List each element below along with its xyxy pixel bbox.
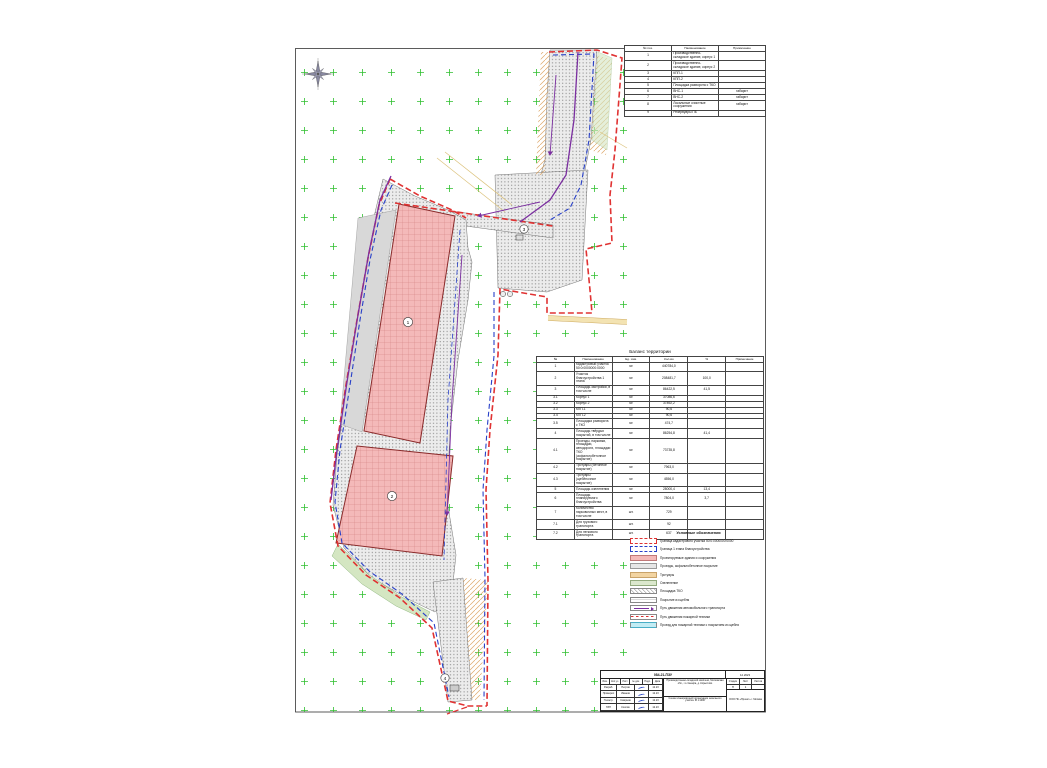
document-code: 084-21-ПЗУ (601, 671, 725, 678)
table-cell: Для легкового транспорта (574, 529, 612, 539)
sign-cell: Разраб. (601, 685, 617, 692)
table-cell (726, 493, 764, 507)
table-cell: Локальные очистные сооружения (672, 100, 719, 110)
table-cell: м² (612, 473, 650, 487)
signature-icon (635, 691, 649, 698)
explication-table: № поз.НаименованиеПримечание1Производств… (624, 45, 766, 117)
drawing-sheet-page: { "colors": { "c-red": "#e03232", "c-blu… (0, 0, 1047, 768)
table-cell: м² (612, 362, 650, 372)
table-cell (726, 438, 764, 463)
table-cell (726, 362, 764, 372)
hatch-swatch-icon (630, 588, 657, 594)
table-cell: 4.1 (537, 438, 575, 463)
table-row: 1Производственно-складское здание, корпу… (625, 51, 766, 61)
organization-name: ООО ПК «Проект» г. Москва (727, 690, 764, 711)
table-cell: 4.2 (537, 463, 575, 473)
table-cell: Кадастровый участок 50:0:0000000:0000 (574, 362, 612, 372)
sheets-cell: Листов (752, 679, 764, 689)
sign-cell: Проверил (601, 691, 617, 698)
legend-item: Проезд для пожарной техники с покрытием … (630, 622, 767, 628)
table-row: 9Резервуары ПБ (625, 110, 766, 116)
table-cell: м² (612, 463, 650, 473)
table-cell: 8 (625, 100, 672, 110)
sign-cell: 12.23 (649, 698, 663, 705)
sheet-cell: Лист 1 (740, 679, 753, 689)
pink-swatch-icon (630, 555, 657, 561)
table-cell: 41,4 (688, 429, 726, 439)
table-cell: 4 (537, 429, 575, 439)
table-cell: Производственно-складское здание, корпус… (672, 51, 719, 61)
signature-icon (635, 698, 649, 705)
signature-icon (635, 704, 649, 711)
sheet-title: Схема планировочной организации земельно… (664, 697, 726, 711)
table-row: 4Площадь твёрдых покрытий, в том числем²… (537, 429, 764, 439)
table-cell: Производственно-складское здание, корпус… (672, 61, 719, 71)
table-cell (726, 520, 764, 530)
legend-item: Путь движения пожарной техники (630, 614, 767, 620)
table-row: 3.5Площадка разворота с ТКОм²474,7 (537, 419, 764, 429)
table-cell: 7.2 (537, 529, 575, 539)
table-cell: Для грузового транспорта (574, 520, 612, 530)
table-cell (726, 473, 764, 487)
table-cell: 73735,8 (650, 438, 688, 463)
table-cell: 729 (650, 506, 688, 520)
legend-label: Тротуары (660, 573, 674, 577)
table-cell: 86422,5 (650, 385, 688, 395)
table-cell: Проезды, парковки, площадки, автодороги,… (574, 438, 612, 463)
table-cell: м² (612, 372, 650, 386)
table-cell: м² (612, 493, 650, 507)
signature-table: Изм.Кол.уч.Лист№ док.Подп.ДатаРазраб.Пет… (601, 679, 664, 711)
legend-panel: Условные обозначения Граница кадастровог… (630, 531, 767, 630)
table-cell: Тротуары (щебёночное покрытие) (574, 473, 612, 487)
table-cell (726, 463, 764, 473)
table-cell: м² (612, 419, 650, 429)
legend-label: Проектируемые здания и сооружения (660, 556, 716, 560)
table-cell: м² (612, 385, 650, 395)
table-cell: 6 (537, 493, 575, 507)
table-cell: 1 (537, 362, 575, 372)
legend-label: Граница 1 этапа благоустройства (660, 547, 709, 551)
table-cell (726, 372, 764, 386)
signature-icon (635, 685, 649, 692)
table-cell (688, 520, 726, 530)
table-cell (719, 110, 766, 116)
signature-icon (638, 699, 646, 703)
table-cell: габарит (719, 100, 766, 110)
stage-cell: Стадия П (727, 679, 740, 689)
table-cell (688, 438, 726, 463)
vns-tank-2 (507, 291, 512, 296)
table-cell (688, 463, 726, 473)
site-plan-map: 1 2 3 4 (0, 0, 1047, 768)
table-row: 3Площадь застройки, в том числем²86422,5… (537, 385, 764, 395)
sign-cell: 12.23 (649, 685, 663, 692)
balloon-1: 1 (407, 320, 410, 326)
table-cell: Площадка разворота с ТКО (574, 419, 612, 429)
sheets-value (752, 685, 764, 690)
sign-cell: Иванов (617, 691, 635, 698)
legend-label: Покрытие из щебня (660, 598, 689, 602)
table-cell: 7 (537, 506, 575, 520)
table-cell: 7804,0 (650, 493, 688, 507)
table-cell: 3.5 (537, 419, 575, 429)
balloon-3: 3 (523, 227, 526, 233)
red-dots-swatch-icon (630, 614, 657, 620)
sign-cell: Смирнов (617, 698, 635, 705)
legend-item: Проектируемые здания и сооружения (630, 555, 767, 561)
kpp-2-structure (450, 685, 459, 691)
sign-cell: Н.контр. (601, 698, 617, 705)
building-corpus-2 (336, 446, 453, 556)
sign-row: Разраб.Петров12.23 (601, 685, 663, 692)
green-swatch-icon (630, 580, 657, 586)
table-cell (688, 419, 726, 429)
signature-icon (638, 685, 646, 689)
table-row: 4.2Тротуары (бетонное покрытие)м²7963,0 (537, 463, 764, 473)
table-cell: 4556,0 (650, 473, 688, 487)
red-dash-swatch-icon (630, 538, 657, 544)
table-cell: 86254,8 (650, 429, 688, 439)
legend-label: Проезды, асфальтобетонное покрытие (660, 564, 718, 568)
sign-cell: Козлов (617, 704, 635, 711)
table-cell: Площадь твёрдых покрытий, в том числе (574, 429, 612, 439)
table-row: 7.1Для грузового транспорташт.92 (537, 520, 764, 530)
title-block-top-row: 084-21-ПЗУ 12.2023 (601, 671, 764, 679)
signature-icon (638, 692, 646, 696)
table-cell (719, 51, 766, 61)
sheet-value: 1 (740, 685, 752, 690)
legend-item: Путь движения автомобильного транспорта (630, 605, 767, 611)
table-cell: 100,0 (688, 372, 726, 386)
table-cell (719, 61, 766, 71)
table-cell: шт. (612, 520, 650, 530)
table-cell: 208481,7 (650, 372, 688, 386)
table-cell: 7.1 (537, 520, 575, 530)
explication-table-panel: № поз.НаименованиеПримечание1Производств… (624, 45, 766, 117)
table-cell: шт. (612, 506, 650, 520)
table-cell (688, 362, 726, 372)
lines-swatch-icon (630, 597, 657, 603)
table-cell: Тротуары (бетонное покрытие) (574, 463, 612, 473)
balance-title: Баланс территории (536, 349, 764, 354)
title-block-middle: Производственно-складской комплекс, Моск… (664, 679, 727, 711)
legend-label: Путь движения пожарной техники (660, 615, 710, 619)
signature-icon (638, 705, 646, 709)
table-cell (726, 419, 764, 429)
balloon-4: 4 (444, 676, 447, 682)
table-cell: 7963,0 (650, 463, 688, 473)
table-cell: 440784,0 (650, 362, 688, 372)
table-cell: Площадь застройки, в том числе (574, 385, 612, 395)
table-cell: 92 (650, 520, 688, 530)
table-cell: 2 (537, 372, 575, 386)
legend-label: Озеленение (660, 581, 678, 585)
sign-cell: 12.23 (649, 704, 663, 711)
table-row: 8Локальные очистные сооружениягабарит (625, 100, 766, 110)
legend-title: Условные обозначения (630, 531, 767, 535)
table-cell (726, 506, 764, 520)
legend-item: Озеленение (630, 580, 767, 586)
document-date: 12.2023 (725, 671, 764, 678)
title-block: 084-21-ПЗУ 12.2023 Изм.Кол.уч.Лист№ док.… (600, 670, 765, 712)
stage-sheet-cells: Стадия П Лист 1 Листов (727, 679, 764, 690)
table-cell: Площадь планируемого благоустройства (574, 493, 612, 507)
table-cell (688, 506, 726, 520)
table-row: 6Площадь планируемого благоустройствам²7… (537, 493, 764, 507)
sign-cell: 12.23 (649, 691, 663, 698)
table-cell: 2 (625, 61, 672, 71)
table-cell: Резервуары ПБ (672, 110, 719, 116)
table-cell: 474,7 (650, 419, 688, 429)
vns-tank-1 (500, 291, 505, 296)
legend-label: Площадка ТКО (660, 589, 683, 593)
table-row: 4.1Проезды, парковки, площадки, автодоро… (537, 438, 764, 463)
table-row: 7Количество парковочных мест, в том числ… (537, 506, 764, 520)
table-cell: 41,5 (688, 385, 726, 395)
legend-label: Путь движения автомобильного транспорта (660, 606, 725, 610)
table-cell: 3 (537, 385, 575, 395)
title-block-right: Стадия П Лист 1 Листов ООО ПК «Проект» г… (727, 679, 764, 711)
table-cell: 1 (625, 51, 672, 61)
table-cell: Участок благоустройства 1 этапа (574, 372, 612, 386)
table-cell: м² (612, 429, 650, 439)
table-cell (688, 473, 726, 487)
balance-table: №НаименованиеЕд. изм.Кол-во%Примечание1К… (536, 356, 764, 540)
sign-row: ГИПКозлов12.23 (601, 704, 663, 711)
legend-item: Граница 1 этапа благоустройства (630, 546, 767, 552)
kpp-1-structure (516, 235, 523, 240)
table-row: 2Участок благоустройства 1 этапам²208481… (537, 372, 764, 386)
stage-value: П (727, 685, 739, 690)
sign-row: ПроверилИванов12.23 (601, 691, 663, 698)
table-row: 4.3Тротуары (щебёночное покрытие)м²4556,… (537, 473, 764, 487)
sign-cell: Петров (617, 685, 635, 692)
legend-item: Площадка ТКО (630, 588, 767, 594)
title-block-body: Изм.Кол.уч.Лист№ док.Подп.ДатаРазраб.Пет… (601, 679, 764, 711)
table-cell: 3,7 (688, 493, 726, 507)
table-cell (726, 429, 764, 439)
table-cell: 4.3 (537, 473, 575, 487)
legend-label: Проезд для пожарной техники с покрытием … (660, 623, 739, 627)
table-cell (726, 385, 764, 395)
blue-dash-swatch-icon (630, 546, 657, 552)
sign-row: Н.контр.Смирнов12.23 (601, 698, 663, 705)
legend-label: Граница кадастрового участка 50:0:000000… (660, 539, 733, 543)
legend-items: Граница кадастрового участка 50:0:000000… (630, 538, 767, 628)
table-cell: м² (612, 438, 650, 463)
legend-item: Проезды, асфальтобетонное покрытие (630, 563, 767, 569)
project-name: Производственно-складской комплекс, Моск… (664, 679, 726, 697)
table-row: 2Производственно-складское здание, корпу… (625, 61, 766, 71)
cyan-swatch-icon (630, 622, 657, 628)
legend-item: Граница кадастрового участка 50:0:000000… (630, 538, 767, 544)
table-row: 1Кадастровый участок 50:0:0000000:0000м²… (537, 362, 764, 372)
balloon-2: 2 (391, 494, 394, 500)
sign-cell: ГИП (601, 704, 617, 711)
table-cell: Количество парковочных мест, в том числе (574, 506, 612, 520)
arrow-swatch-icon (630, 605, 657, 611)
tan-swatch-icon (630, 572, 657, 578)
balance-panel: Баланс территории №НаименованиеЕд. изм.К… (536, 349, 764, 540)
table-cell: 9 (625, 110, 672, 116)
gray-swatch-icon (630, 563, 657, 569)
legend-item: Тротуары (630, 572, 767, 578)
legend-item: Покрытие из щебня (630, 597, 767, 603)
